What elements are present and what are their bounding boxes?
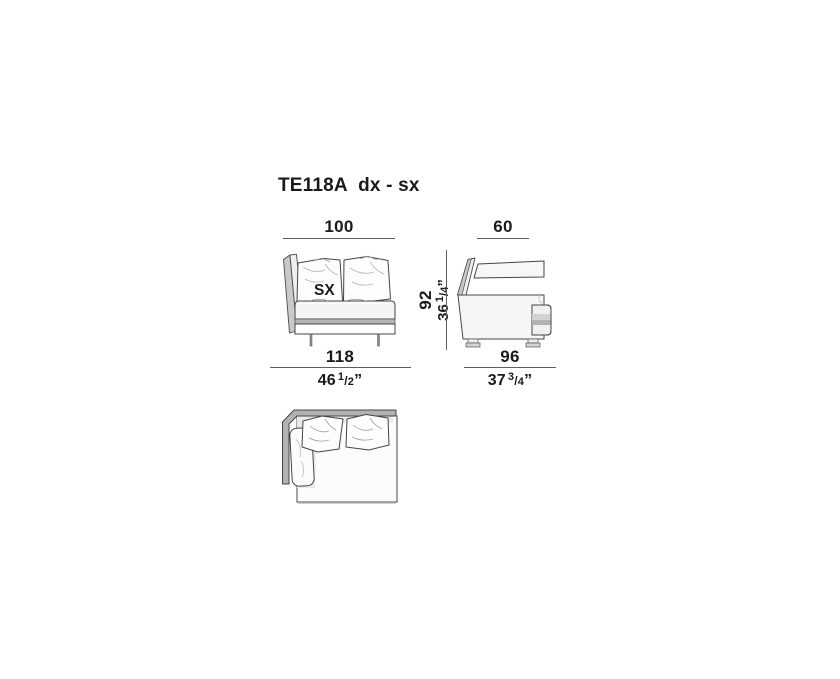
front-base-band xyxy=(295,319,395,324)
total-width-cm-label: 118 xyxy=(280,347,400,367)
front-seat-cushion xyxy=(295,299,395,319)
top-view-drawing xyxy=(281,409,401,507)
side-back-cushion xyxy=(474,261,544,278)
total-width-inch-label: 461/2” xyxy=(280,371,400,390)
side-depth-dimension-line xyxy=(477,238,529,239)
orientation-label: SX xyxy=(314,282,335,299)
total-width-inch-whole: 46 xyxy=(318,372,336,389)
front-base xyxy=(295,324,395,334)
height-inch-denominator: 4 xyxy=(439,287,451,293)
total-depth-cm-label: 96 xyxy=(450,347,570,367)
total-width-dimension-line xyxy=(270,367,411,368)
height-dimension-line xyxy=(446,250,447,350)
total-depth-dimension-line xyxy=(464,367,556,368)
height-inch-numerator: 1 xyxy=(434,296,446,302)
side-backrest-shape xyxy=(458,258,476,295)
height-inch-whole: 36 xyxy=(435,304,452,321)
side-armrest-profile xyxy=(532,305,551,335)
front-width-dimension-line xyxy=(283,238,395,239)
total-width-inch-unit: ” xyxy=(354,372,362,389)
total-depth-inch-whole: 37 xyxy=(488,372,506,389)
side-body xyxy=(458,295,544,339)
total-depth-inch-label: 373/4” xyxy=(450,371,570,390)
front-legs xyxy=(310,334,380,346)
side-view-drawing xyxy=(456,252,552,348)
total-depth-inch-unit: ” xyxy=(524,372,532,389)
front-view-drawing: SX xyxy=(280,252,398,348)
side-feet xyxy=(466,339,540,347)
height-inch-unit: ” xyxy=(435,279,452,287)
spec-sheet: TE118A dx - sx 100 60 SX xyxy=(0,0,840,679)
front-width-cm-label: 100 xyxy=(279,217,399,237)
side-depth-cm-label: 60 xyxy=(443,217,563,237)
front-back-cushions xyxy=(297,256,391,303)
page-title: TE118A dx - sx xyxy=(278,175,420,197)
